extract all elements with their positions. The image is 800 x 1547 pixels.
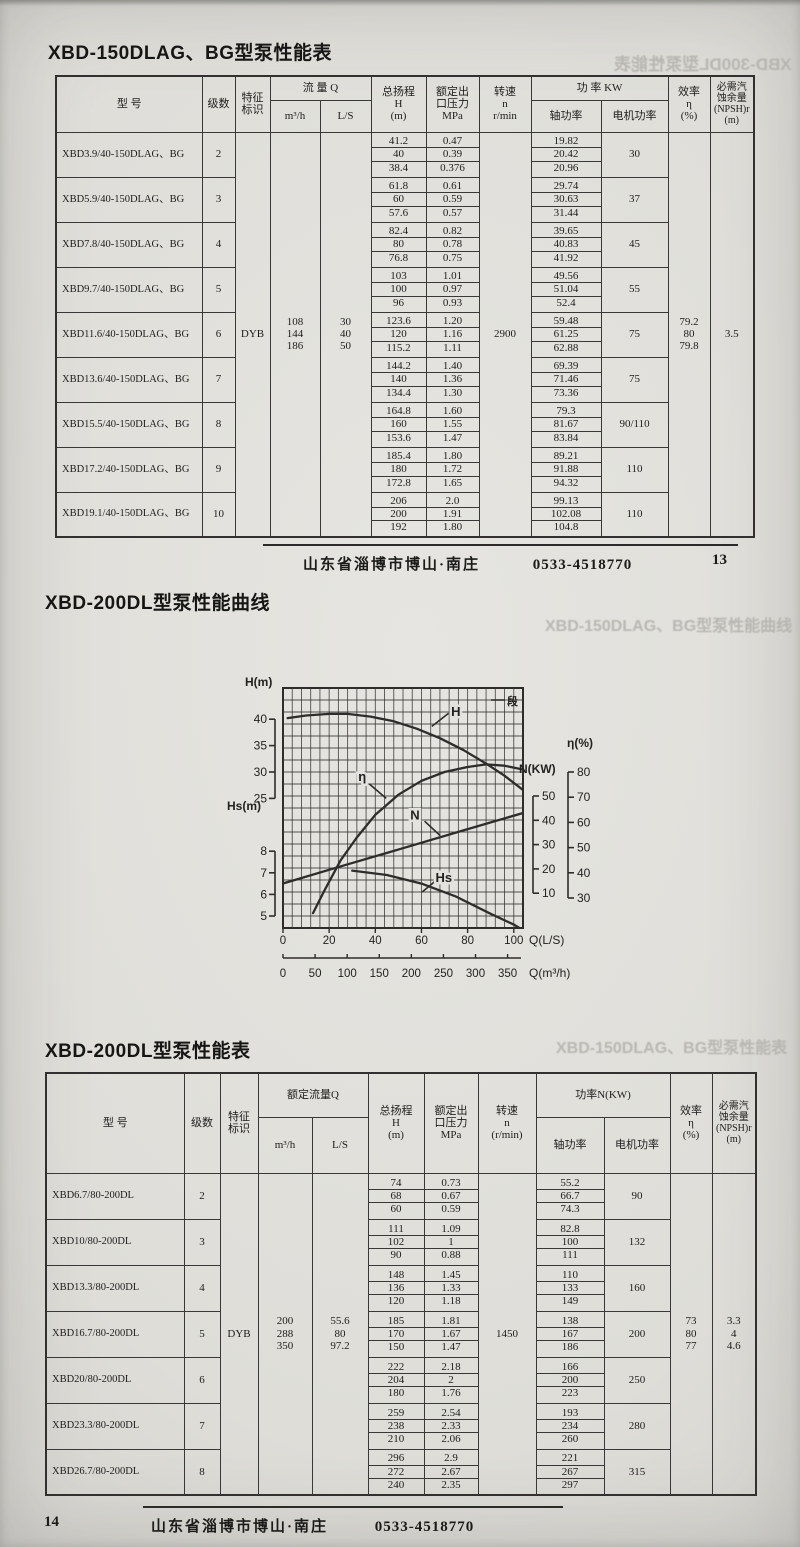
head-cell-value: 240 [369, 1479, 424, 1491]
shaft-power-cell-value: 41.92 [532, 252, 601, 264]
table-row: XBD7.8/40-150DLAG、BG482.48076.80.820.780… [56, 222, 754, 267]
table-row: XBD13.6/40-150DLAG、BG7144.2140134.41.401… [56, 357, 754, 402]
col-mark: 特征 标识 [220, 1073, 258, 1173]
model-cell: XBD5.9/40-150DLAG、BG [56, 177, 202, 222]
page14-footer: 山东省淄博市博山·南庄 0533-4518770 [143, 1506, 563, 1536]
x-tick-label: 100 [504, 935, 523, 947]
head-cell-value: 57.6 [372, 207, 426, 219]
motor-power-cell: 45 [601, 222, 668, 267]
x2-axis-label: Q(m³/h) [529, 966, 570, 980]
curve-leader-Hs [422, 880, 436, 892]
shaft-power-cell-value: 79.3 [532, 405, 601, 418]
pressure-cell: 1.811.671.47 [424, 1311, 478, 1357]
head-cell-value: 238 [369, 1420, 424, 1433]
pressure-cell-value: 0.376 [427, 162, 479, 174]
shaft-power-cell: 193234260 [536, 1403, 604, 1449]
pressure-cell-value: 2.06 [425, 1433, 478, 1445]
N-tick-label: 30 [542, 838, 556, 852]
pressure-cell: 1.601.551.47 [426, 402, 479, 447]
pressure-cell: 1.451.331.18 [424, 1265, 478, 1311]
head-cell-value: 200 [372, 508, 426, 521]
head-cell-value: 140 [372, 373, 426, 386]
pressure-cell: 0.820.780.75 [426, 222, 479, 267]
head-cell-value: 61.8 [372, 180, 426, 193]
col-stages: 级数 [184, 1073, 220, 1173]
head-cell-value: 222 [369, 1361, 424, 1374]
pump-performance-table-200: 型 号 级数 特征 标识 额定流量Q 总扬程 H (m) 额定出 口压力 MPa… [45, 1072, 757, 1496]
pressure-cell-value: 0.88 [425, 1249, 478, 1261]
pressure-cell-value: 1.47 [427, 432, 479, 444]
col-power: 功率N(KW) [536, 1073, 670, 1117]
feature-mark-cell: DYB [235, 132, 270, 537]
pressure-cell-value: 1.80 [427, 450, 479, 463]
Hs-tick-label: 7 [260, 866, 267, 880]
head-cell-value: 40 [372, 148, 426, 161]
model-cell: XBD3.9/40-150DLAG、BG [56, 132, 202, 177]
pressure-cell-value: 1.45 [425, 1269, 478, 1282]
motor-power-cell: 280 [604, 1403, 670, 1449]
shaft-power-cell-value: 20.96 [532, 162, 601, 174]
pressure-cell: 1.201.161.11 [426, 312, 479, 357]
eta-tick-label: 80 [577, 765, 591, 779]
motor-power-cell: 30 [601, 132, 668, 177]
pressure-cell-value: 2.33 [425, 1420, 478, 1433]
pressure-cell-value: 1.33 [425, 1282, 478, 1295]
head-cell: 185.4180172.8 [371, 447, 426, 492]
eta-tick-label: 50 [577, 841, 591, 855]
shaft-power-cell: 89.2191.8894.32 [531, 447, 601, 492]
x2-tick-label: 250 [434, 968, 453, 980]
model-cell: XBD13.3/80-200DL [46, 1265, 184, 1311]
col-eff: 效率 η (%) [668, 76, 710, 132]
shaft-power-cell-value: 104.8 [532, 521, 601, 533]
x2-tick-label: 100 [338, 968, 357, 980]
pressure-cell-value: 1.16 [427, 328, 479, 341]
motor-power-cell: 90/110 [601, 402, 668, 447]
pressure-cell-value: 1.60 [427, 405, 479, 418]
pressure-cell-value: 0.61 [427, 180, 479, 193]
model-cell: XBD23.3/80-200DL [46, 1403, 184, 1449]
shaft-power-cell-value: 55.2 [537, 1177, 604, 1190]
table-row: XBD6.7/80-200DL2DYB200 288 35055.6 80 97… [46, 1173, 756, 1219]
col-speed: 转速 n r/min [479, 76, 531, 132]
curve-label-N: N [410, 807, 419, 822]
shaft-power-cell-value: 52.4 [532, 297, 601, 309]
corner-glyph: 段 [507, 694, 518, 708]
x-tick-label: 0 [280, 935, 286, 947]
motor-power-cell: 75 [601, 312, 668, 357]
speed-cell: 1450 [478, 1173, 536, 1495]
model-cell: XBD13.6/40-150DLAG、BG [56, 357, 202, 402]
head-cell-value: 115.2 [372, 342, 426, 354]
shaft-power-cell-value: 260 [537, 1433, 604, 1445]
shaft-power-cell-value: 62.88 [532, 342, 601, 354]
shaft-power-cell-value: 193 [537, 1407, 604, 1420]
motor-power-cell: 75 [601, 357, 668, 402]
shaft-power-cell-value: 200 [537, 1374, 604, 1387]
shaft-power-cell-value: 40.83 [532, 238, 601, 251]
pressure-cell-value: 1.76 [425, 1387, 478, 1399]
head-cell-value: 206 [372, 495, 426, 508]
stages-cell: 7 [202, 357, 235, 402]
motor-power-cell: 200 [604, 1311, 670, 1357]
eta-tick-label: 60 [577, 815, 591, 829]
shaft-power-cell-value: 186 [537, 1341, 604, 1353]
shaft-power-cell-value: 59.48 [532, 315, 601, 328]
col-flow-m3h: m³/h [270, 100, 320, 132]
pressure-cell-value: 1.65 [427, 477, 479, 489]
pressure-cell-value: 1.81 [425, 1315, 478, 1328]
head-cell-value: 144.2 [372, 360, 426, 373]
head-cell-value: 60 [372, 193, 426, 206]
pressure-cell-value: 1.72 [427, 463, 479, 476]
table1-body: XBD3.9/40-150DLAG、BG2DYB108 144 18630 40… [56, 132, 754, 537]
head-cell-value: 164.8 [372, 405, 426, 418]
head-cell-value: 150 [369, 1341, 424, 1353]
table-row: XBD3.9/40-150DLAG、BG2DYB108 144 18630 40… [56, 132, 754, 177]
chart-title: XBD-200DL型泵性能曲线 [45, 588, 270, 615]
x-tick-label: 80 [461, 935, 474, 947]
stages-cell: 4 [202, 222, 235, 267]
shaft-power-cell-value: 111 [537, 1249, 604, 1261]
col-npsh: 必需汽 蚀余量 (NPSH)r (m) [712, 1073, 756, 1173]
shaft-power-cell-value: 133 [537, 1282, 604, 1295]
shaft-power-cell-value: 297 [537, 1479, 604, 1491]
head-cell-value: 185 [369, 1315, 424, 1328]
stages-cell: 8 [202, 402, 235, 447]
shaft-power-cell: 221267297 [536, 1449, 604, 1495]
motor-power-cell: 37 [601, 177, 668, 222]
head-cell-value: 136 [369, 1282, 424, 1295]
col-npsh: 必需汽 蚀余量 (NPSH)r (m) [710, 76, 754, 132]
x2-tick-label: 150 [370, 968, 389, 980]
pressure-cell-value: 1.40 [427, 360, 479, 373]
publisher-phone: 0533-4518770 [375, 1519, 475, 1535]
table-row: XBD5.9/40-150DLAG、BG361.86057.60.610.590… [56, 177, 754, 222]
pressure-cell: 1.0910.88 [424, 1219, 478, 1265]
shaft-power-cell-value: 267 [537, 1466, 604, 1479]
model-cell: XBD7.8/40-150DLAG、BG [56, 222, 202, 267]
head-cell-value: 41.2 [372, 135, 426, 148]
motor-power-cell: 160 [604, 1265, 670, 1311]
eta-tick-label: 30 [577, 891, 591, 905]
shaft-power-cell: 138167186 [536, 1311, 604, 1357]
model-cell: XBD16.7/80-200DL [46, 1311, 184, 1357]
shaft-power-cell-value: 110 [537, 1269, 604, 1282]
stages-cell: 3 [184, 1219, 220, 1265]
stages-cell: 8 [184, 1449, 220, 1495]
N-tick-label: 10 [542, 886, 556, 900]
shaft-power-cell: 49.5651.0452.4 [531, 267, 601, 312]
head-cell-value: 185.4 [372, 450, 426, 463]
page13-footer: 山东省淄博市博山·南庄 0533-4518770 [263, 544, 738, 574]
feature-mark-cell: DYB [220, 1173, 258, 1495]
N-tick-label: 40 [542, 813, 556, 827]
table2-header: 型 号 级数 特征 标识 额定流量Q 总扬程 H (m) 额定出 口压力 MPa… [46, 1073, 756, 1173]
head-cell-value: 134.4 [372, 387, 426, 399]
head-cell: 41.24038.4 [371, 132, 426, 177]
pump-performance-table-150: 型 号 级数 特征 标识 流 量 Q 总扬程 H (m) 额定出 口压力 MPa… [55, 75, 755, 538]
head-cell: 746860 [368, 1173, 424, 1219]
shaft-power-cell-value: 39.65 [532, 225, 601, 238]
bleed-through-artifact: XBD-300DL型泵性能表 [614, 50, 792, 75]
shaft-power-cell-value: 234 [537, 1420, 604, 1433]
head-cell-value: 120 [372, 328, 426, 341]
head-cell-value: 80 [372, 238, 426, 251]
shaft-power-cell-value: 99.13 [532, 495, 601, 508]
model-cell: XBD11.6/40-150DLAG、BG [56, 312, 202, 357]
pressure-cell: 2.1821.76 [424, 1357, 478, 1403]
model-cell: XBD26.7/80-200DL [46, 1449, 184, 1495]
motor-power-cell: 90 [604, 1173, 670, 1219]
shaft-power-cell-value: 83.84 [532, 432, 601, 444]
curve-label-H: H [451, 704, 460, 719]
x2-tick-label: 350 [498, 968, 517, 980]
head-cell-value: 180 [372, 463, 426, 476]
pressure-cell-value: 0.73 [425, 1177, 478, 1190]
stages-cell: 5 [202, 267, 235, 312]
pressure-cell-value: 0.59 [427, 193, 479, 206]
col-motor-power: 电机功率 [604, 1117, 670, 1173]
pressure-cell-value: 0.57 [427, 207, 479, 219]
shaft-power-cell-value: 49.56 [532, 270, 601, 283]
motor-power-cell: 315 [604, 1449, 670, 1495]
H-tick-label: 35 [254, 739, 268, 753]
table1-header: 型 号 级数 特征 标识 流 量 Q 总扬程 H (m) 额定出 口压力 MPa… [56, 76, 754, 132]
stages-cell: 4 [184, 1265, 220, 1311]
col-head: 总扬程 H (m) [368, 1073, 424, 1173]
stages-cell: 6 [202, 312, 235, 357]
model-cell: XBD10/80-200DL [46, 1219, 184, 1265]
shaft-power-cell-value: 29.74 [532, 180, 601, 193]
pressure-cell-value: 1.09 [425, 1223, 478, 1236]
bleed-through-artifact: XBD-150DLAG、BG型泵性能表 [556, 1034, 787, 1058]
pressure-cell-value: 0.93 [427, 297, 479, 309]
col-flow-ls: L/S [320, 100, 371, 132]
shaft-power-cell-value: 51.04 [532, 283, 601, 296]
page-number-13: 13 [712, 552, 727, 569]
head-cell-value: 172.8 [372, 477, 426, 489]
head-cell-value: 68 [369, 1190, 424, 1203]
x2-tick-label: 50 [309, 968, 322, 980]
table-row: XBD11.6/40-150DLAG、BG6123.6120115.21.201… [56, 312, 754, 357]
H-axis-label: H(m) [245, 676, 272, 689]
shaft-power-cell-value: 149 [537, 1295, 604, 1307]
shaft-power-cell-value: 82.8 [537, 1223, 604, 1236]
col-motor-power: 电机功率 [601, 100, 668, 132]
table2-body: XBD6.7/80-200DL2DYB200 288 35055.6 80 97… [46, 1173, 756, 1495]
head-cell-value: 296 [369, 1452, 424, 1465]
head-cell: 123.6120115.2 [371, 312, 426, 357]
col-power: 功 率 KW [531, 76, 668, 100]
col-pressure: 额定出 口压力 MPa [426, 76, 479, 132]
shaft-power-cell-value: 19.82 [532, 135, 601, 148]
model-cell: XBD20/80-200DL [46, 1357, 184, 1403]
curve-label-Hs: Hs [435, 870, 452, 885]
pressure-cell-value: 1.30 [427, 387, 479, 399]
bleed-through-artifact: XBD-150DLAG、BG型泵性能曲线 [545, 612, 792, 636]
table-row: XBD23.3/80-200DL72592382102.542.332.0619… [46, 1403, 756, 1449]
head-cell-value: 272 [369, 1466, 424, 1479]
scanned-catalog-page: XBD-300DL型泵性能表 XBD-150DLAG、BG型泵性能曲线 XBD-… [0, 0, 800, 1547]
head-cell-value: 76.8 [372, 252, 426, 264]
shaft-power-cell: 59.4861.2562.88 [531, 312, 601, 357]
shaft-power-cell: 79.381.6783.84 [531, 402, 601, 447]
eta-tick-label: 40 [577, 866, 591, 880]
pressure-cell-value: 0.47 [427, 135, 479, 148]
pressure-cell-value: 0.97 [427, 283, 479, 296]
head-cell-value: 170 [369, 1328, 424, 1341]
curve-η [313, 764, 523, 913]
H-tick-label: 30 [254, 765, 268, 779]
Hs-axis-label: Hs(m) [227, 799, 261, 813]
Hs-tick-label: 6 [260, 887, 267, 901]
N-tick-label: 20 [542, 862, 556, 876]
flow-ls-cell: 30 40 50 [320, 132, 371, 537]
shaft-power-cell-value: 166 [537, 1361, 604, 1374]
pressure-cell-value: 2.67 [425, 1466, 478, 1479]
head-cell: 296272240 [368, 1449, 424, 1495]
shaft-power-cell: 39.6540.8341.92 [531, 222, 601, 267]
shaft-power-cell-value: 91.88 [532, 463, 601, 476]
col-model: 型 号 [56, 76, 202, 132]
col-shaft-power: 轴功率 [531, 100, 601, 132]
shaft-power-cell-value: 30.63 [532, 193, 601, 206]
col-head: 总扬程 H (m) [371, 76, 426, 132]
head-cell: 185170150 [368, 1311, 424, 1357]
page-number-14: 14 [44, 1514, 59, 1531]
head-cell: 148136120 [368, 1265, 424, 1311]
eta-axis-label: η(%) [567, 736, 593, 750]
shaft-power-cell-value: 73.36 [532, 387, 601, 399]
pressure-cell-value: 0.78 [427, 238, 479, 251]
head-cell-value: 259 [369, 1407, 424, 1420]
head-cell-value: 111 [369, 1223, 424, 1236]
pressure-cell-value: 2.18 [425, 1361, 478, 1374]
shaft-power-cell: 166200223 [536, 1357, 604, 1403]
scan-edge-shadow [0, 0, 800, 6]
efficiency-cell: 79.2 80 79.8 [668, 132, 710, 537]
pressure-cell-value: 1.80 [427, 521, 479, 533]
head-cell: 82.48076.8 [371, 222, 426, 267]
pump-performance-chart: HηNHs40353025H(m)8765Hs(m)50403020108070… [223, 676, 621, 993]
stages-cell: 3 [202, 177, 235, 222]
curve-H [288, 714, 523, 790]
head-cell-value: 180 [369, 1387, 424, 1399]
head-cell-value: 153.6 [372, 432, 426, 444]
shaft-power-cell: 69.3971.4673.36 [531, 357, 601, 402]
curve-label-η: η [358, 769, 366, 784]
shaft-power-cell: 99.13102.08104.8 [531, 492, 601, 537]
shaft-power-cell-value: 89.21 [532, 450, 601, 463]
head-cell: 11110290 [368, 1219, 424, 1265]
pressure-cell-value: 2.0 [427, 495, 479, 508]
head-cell-value: 96 [372, 297, 426, 309]
col-flow: 流 量 Q [270, 76, 371, 100]
head-cell-value: 192 [372, 521, 426, 533]
table-row: XBD9.7/40-150DLAG、BG5103100961.010.970.9… [56, 267, 754, 312]
col-pressure: 额定出 口压力 MPa [424, 1073, 478, 1173]
motor-power-cell: 250 [604, 1357, 670, 1403]
Hs-tick-label: 8 [260, 844, 267, 858]
col-flow: 额定流量Q [258, 1073, 368, 1117]
table-row: XBD20/80-200DL62222041802.1821.761662002… [46, 1357, 756, 1403]
table-row: XBD16.7/80-200DL51851701501.811.671.4713… [46, 1311, 756, 1357]
pressure-cell: 2.01.911.80 [426, 492, 479, 537]
head-cell-value: 82.4 [372, 225, 426, 238]
pressure-cell: 1.801.721.65 [426, 447, 479, 492]
stages-cell: 7 [184, 1403, 220, 1449]
stages-cell: 5 [184, 1311, 220, 1357]
flow-m3h-cell: 200 288 350 [258, 1173, 312, 1495]
col-stages: 级数 [202, 76, 235, 132]
col-eff: 效率 η (%) [670, 1073, 712, 1173]
head-cell-value: 102 [369, 1236, 424, 1249]
model-cell: XBD17.2/40-150DLAG、BG [56, 447, 202, 492]
performance-curves-svg: HηNHs40353025H(m)8765Hs(m)50403020108070… [223, 676, 621, 988]
pressure-cell-value: 2.9 [425, 1452, 478, 1465]
shaft-power-cell: 29.7430.6331.44 [531, 177, 601, 222]
pressure-cell-value: 1.20 [427, 315, 479, 328]
pressure-cell-value: 2.54 [425, 1407, 478, 1420]
shaft-power-cell-value: 100 [537, 1236, 604, 1249]
head-cell-value: 60 [369, 1203, 424, 1215]
pressure-cell-value: 0.82 [427, 225, 479, 238]
head-cell-value: 90 [369, 1249, 424, 1261]
npsh-cell: 3.3 4 4.6 [712, 1173, 756, 1495]
motor-power-cell: 55 [601, 267, 668, 312]
pressure-cell-value: 0.59 [425, 1203, 478, 1215]
table-row: XBD19.1/40-150DLAG、BG102062001922.01.911… [56, 492, 754, 537]
table2-title: XBD-200DL型泵性能表 [45, 1036, 250, 1063]
col-flow-ls: L/S [312, 1117, 368, 1173]
shaft-power-cell-value: 167 [537, 1328, 604, 1341]
shaft-power-cell-value: 223 [537, 1387, 604, 1399]
shaft-power-cell-value: 221 [537, 1452, 604, 1465]
shaft-power-cell: 19.8220.4220.96 [531, 132, 601, 177]
head-cell-value: 210 [369, 1433, 424, 1445]
head-cell: 164.8160153.6 [371, 402, 426, 447]
shaft-power-cell-value: 61.25 [532, 328, 601, 341]
x-tick-label: 20 [323, 935, 336, 947]
eta-tick-label: 70 [577, 790, 591, 804]
head-cell-value: 123.6 [372, 315, 426, 328]
model-cell: XBD6.7/80-200DL [46, 1173, 184, 1219]
model-cell: XBD15.5/40-150DLAG、BG [56, 402, 202, 447]
flow-ls-cell: 55.6 80 97.2 [312, 1173, 368, 1495]
pressure-cell-value: 1.01 [427, 270, 479, 283]
shaft-power-cell-value: 74.3 [537, 1203, 604, 1215]
col-shaft-power: 轴功率 [536, 1117, 604, 1173]
head-cell-value: 38.4 [372, 162, 426, 174]
npsh-cell: 3.5 [710, 132, 754, 537]
pressure-cell: 1.010.970.93 [426, 267, 479, 312]
stages-cell: 2 [202, 132, 235, 177]
publisher-address: 山东省淄博市博山·南庄 [303, 557, 480, 573]
pressure-cell-value: 1.67 [425, 1328, 478, 1341]
pressure-cell-value: 2 [425, 1374, 478, 1387]
col-speed: 转速 n (r/min) [478, 1073, 536, 1173]
shaft-power-cell-value: 66.7 [537, 1190, 604, 1203]
motor-power-cell: 110 [601, 447, 668, 492]
shaft-power-cell: 55.266.774.3 [536, 1173, 604, 1219]
stages-cell: 10 [202, 492, 235, 537]
N-tick-label: 50 [542, 789, 556, 803]
flow-m3h-cell: 108 144 186 [270, 132, 320, 537]
pressure-cell-value: 1.47 [425, 1341, 478, 1353]
shaft-power-cell-value: 69.39 [532, 360, 601, 373]
pressure-cell-value: 0.39 [427, 148, 479, 161]
